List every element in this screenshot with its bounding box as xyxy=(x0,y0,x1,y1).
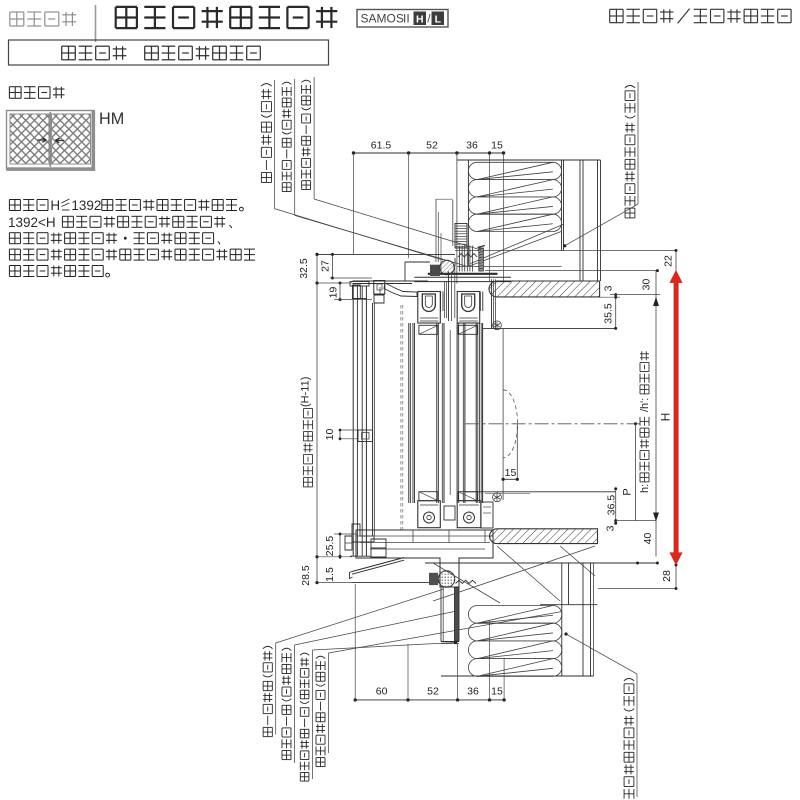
svg-text:40: 40 xyxy=(642,533,654,545)
svg-text:H: H xyxy=(50,198,60,213)
svg-text:L: L xyxy=(435,13,442,25)
svg-text:1392<H: 1392<H xyxy=(8,215,56,230)
svg-text:15: 15 xyxy=(491,140,503,152)
svg-text:HM: HM xyxy=(99,110,124,128)
svg-text:3: 3 xyxy=(605,525,617,531)
svg-text:35.5: 35.5 xyxy=(603,303,615,324)
svg-text:3: 3 xyxy=(603,285,615,291)
svg-text:H: H xyxy=(416,13,424,25)
svg-text:/h':: /h': xyxy=(639,398,651,412)
svg-text:27: 27 xyxy=(320,260,332,272)
svg-text:25.5: 25.5 xyxy=(324,536,336,557)
svg-text:30: 30 xyxy=(641,279,653,291)
svg-text:10: 10 xyxy=(324,429,336,441)
svg-text:1.5: 1.5 xyxy=(324,567,336,582)
svg-text:1392: 1392 xyxy=(71,198,101,213)
svg-text:22: 22 xyxy=(663,255,675,267)
svg-text:SAMOS: SAMOS xyxy=(361,11,404,25)
svg-text:32.5: 32.5 xyxy=(298,258,310,279)
svg-text:28.5: 28.5 xyxy=(300,565,312,586)
svg-text:52: 52 xyxy=(427,686,439,698)
svg-text:19: 19 xyxy=(328,287,340,299)
svg-text:15: 15 xyxy=(491,686,503,698)
svg-text:28: 28 xyxy=(661,570,673,582)
svg-text:60: 60 xyxy=(376,686,388,698)
svg-text:36: 36 xyxy=(466,140,478,152)
svg-text:15: 15 xyxy=(505,467,517,479)
svg-text:36.5: 36.5 xyxy=(606,495,618,516)
svg-text:P: P xyxy=(622,488,634,495)
svg-text:H: H xyxy=(659,413,673,422)
svg-text:52: 52 xyxy=(426,140,438,152)
svg-text:(H-11): (H-11) xyxy=(300,377,312,407)
svg-text:36: 36 xyxy=(467,686,479,698)
svg-text:h:: h: xyxy=(639,484,651,493)
svg-text:II: II xyxy=(403,11,410,25)
svg-text:61.5: 61.5 xyxy=(371,140,392,152)
